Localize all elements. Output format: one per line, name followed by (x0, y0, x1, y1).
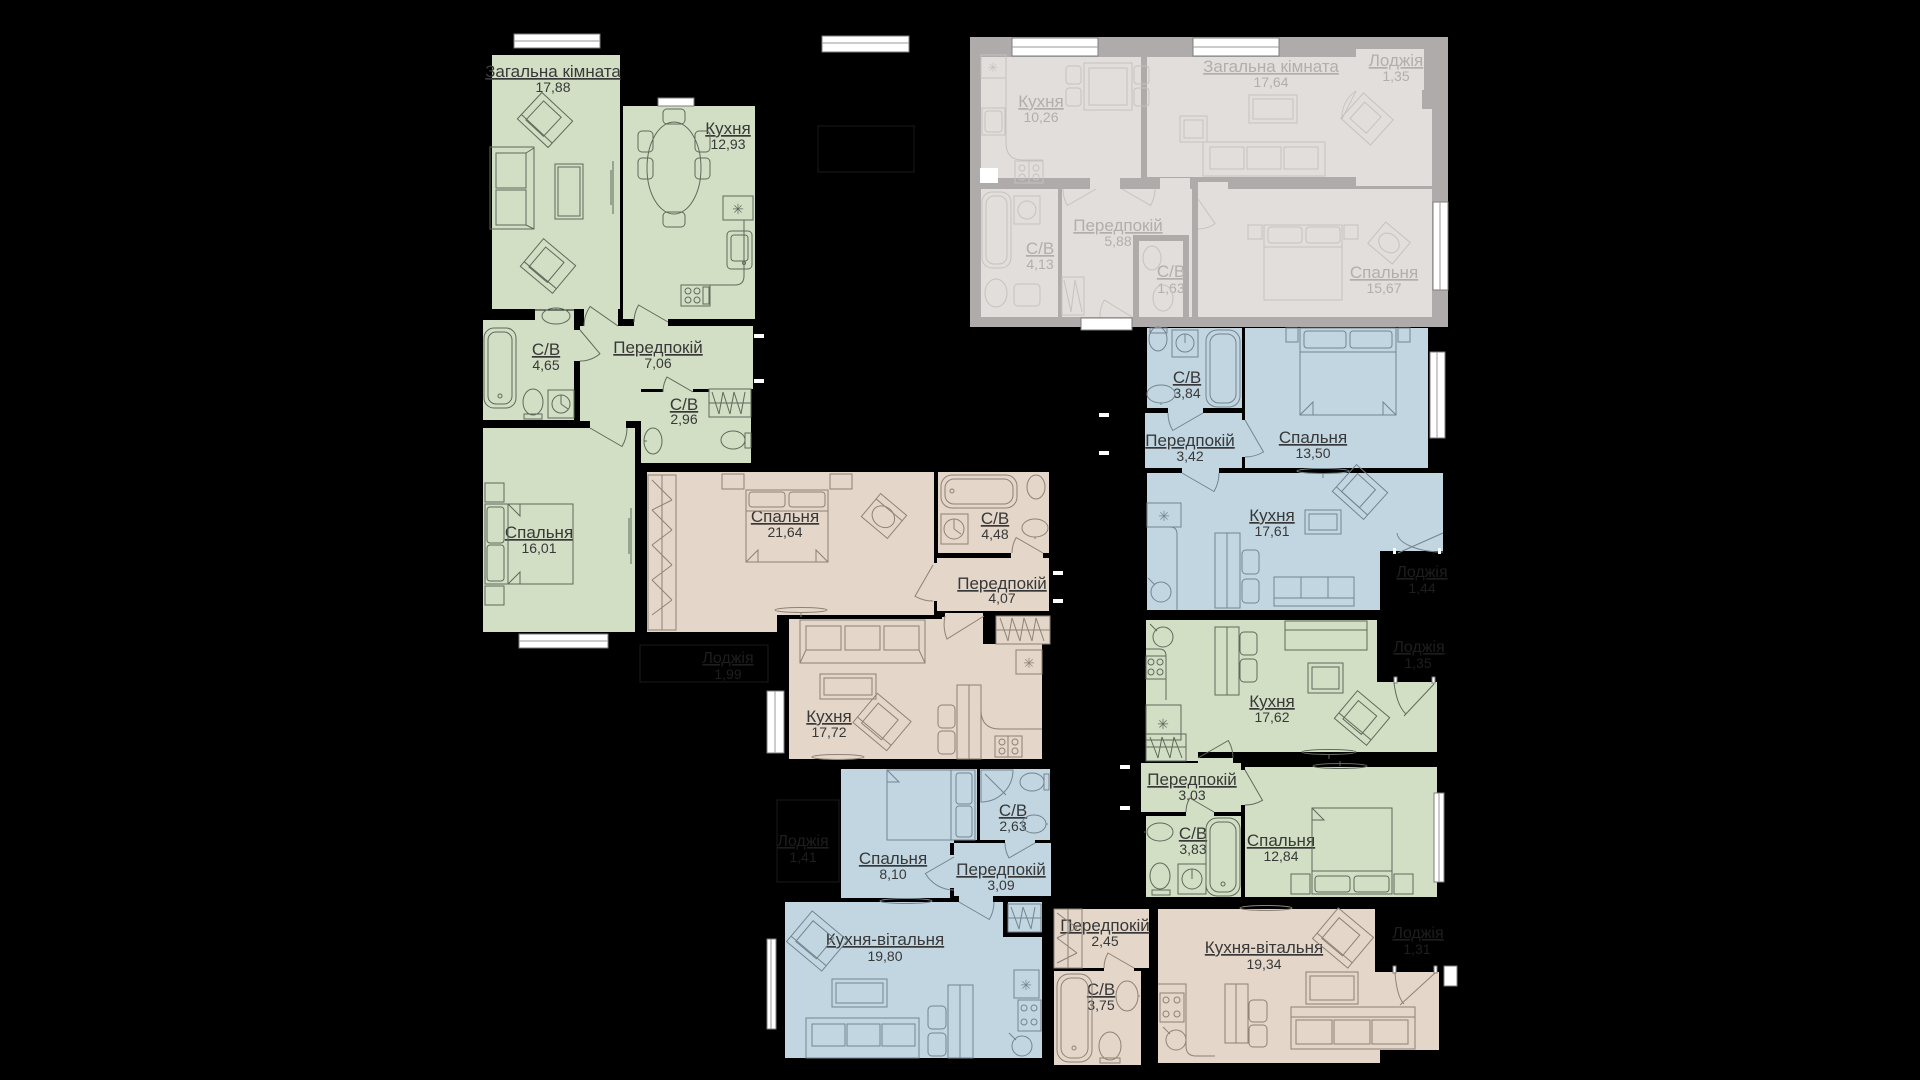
svg-text:19,34: 19,34 (1246, 956, 1281, 972)
svg-text:17,88: 17,88 (535, 79, 570, 95)
svg-text:Лоджія: Лоджія (1392, 925, 1443, 942)
svg-text:1,35: 1,35 (1404, 655, 1431, 671)
svg-text:Лоджія: Лоджія (1396, 564, 1447, 581)
svg-text:4,48: 4,48 (981, 526, 1008, 542)
svg-text:3,75: 3,75 (1087, 997, 1114, 1013)
svg-text:Лоджія: Лоджія (702, 650, 753, 667)
svg-text:10,26: 10,26 (1023, 109, 1058, 125)
svg-text:1,63: 1,63 (1157, 280, 1184, 296)
svg-text:17,72: 17,72 (811, 724, 846, 740)
svg-text:✳: ✳ (1020, 977, 1032, 993)
svg-text:4,07: 4,07 (988, 590, 1015, 606)
svg-text:2,96: 2,96 (670, 411, 697, 427)
svg-text:3,42: 3,42 (1176, 448, 1203, 464)
svg-text:✳: ✳ (1157, 716, 1169, 732)
svg-text:17,64: 17,64 (1253, 74, 1288, 90)
svg-text:17,61: 17,61 (1254, 523, 1289, 539)
svg-text:1,99: 1,99 (714, 666, 741, 682)
svg-text:21,64: 21,64 (767, 524, 802, 540)
svg-text:1,31: 1,31 (1403, 941, 1430, 957)
svg-text:17,62: 17,62 (1254, 709, 1289, 725)
svg-text:✳: ✳ (732, 201, 744, 217)
svg-text:Лоджія: Лоджія (1393, 639, 1444, 656)
svg-text:12,93: 12,93 (710, 136, 745, 152)
svg-text:5,88: 5,88 (1104, 233, 1131, 249)
svg-text:4,13: 4,13 (1026, 256, 1053, 272)
svg-text:Лоджія: Лоджія (777, 833, 828, 850)
svg-text:3,09: 3,09 (987, 877, 1014, 893)
svg-text:15,67: 15,67 (1366, 280, 1401, 296)
svg-text:16,01: 16,01 (521, 540, 556, 556)
svg-text:1,44: 1,44 (1408, 580, 1435, 596)
svg-text:7,06: 7,06 (644, 355, 671, 371)
svg-text:12,84: 12,84 (1263, 848, 1298, 864)
svg-text:19,80: 19,80 (867, 948, 902, 964)
svg-text:3,84: 3,84 (1173, 385, 1200, 401)
svg-text:1,35: 1,35 (1382, 68, 1409, 84)
svg-text:1,41: 1,41 (789, 849, 816, 865)
svg-text:3,03: 3,03 (1178, 787, 1205, 803)
svg-text:4,65: 4,65 (532, 357, 559, 373)
svg-text:✳: ✳ (1158, 508, 1170, 524)
svg-text:✳: ✳ (988, 60, 999, 75)
svg-text:Кухня-вітальня: Кухня-вітальня (1205, 938, 1323, 957)
svg-text:8,10: 8,10 (879, 866, 906, 882)
svg-text:2,45: 2,45 (1091, 933, 1118, 949)
svg-text:3,83: 3,83 (1179, 841, 1206, 857)
svg-text:✳: ✳ (1023, 655, 1035, 671)
svg-text:С/В: С/В (1157, 262, 1185, 281)
svg-text:Кухня-вітальня: Кухня-вітальня (826, 930, 944, 949)
svg-text:13,50: 13,50 (1295, 445, 1330, 461)
